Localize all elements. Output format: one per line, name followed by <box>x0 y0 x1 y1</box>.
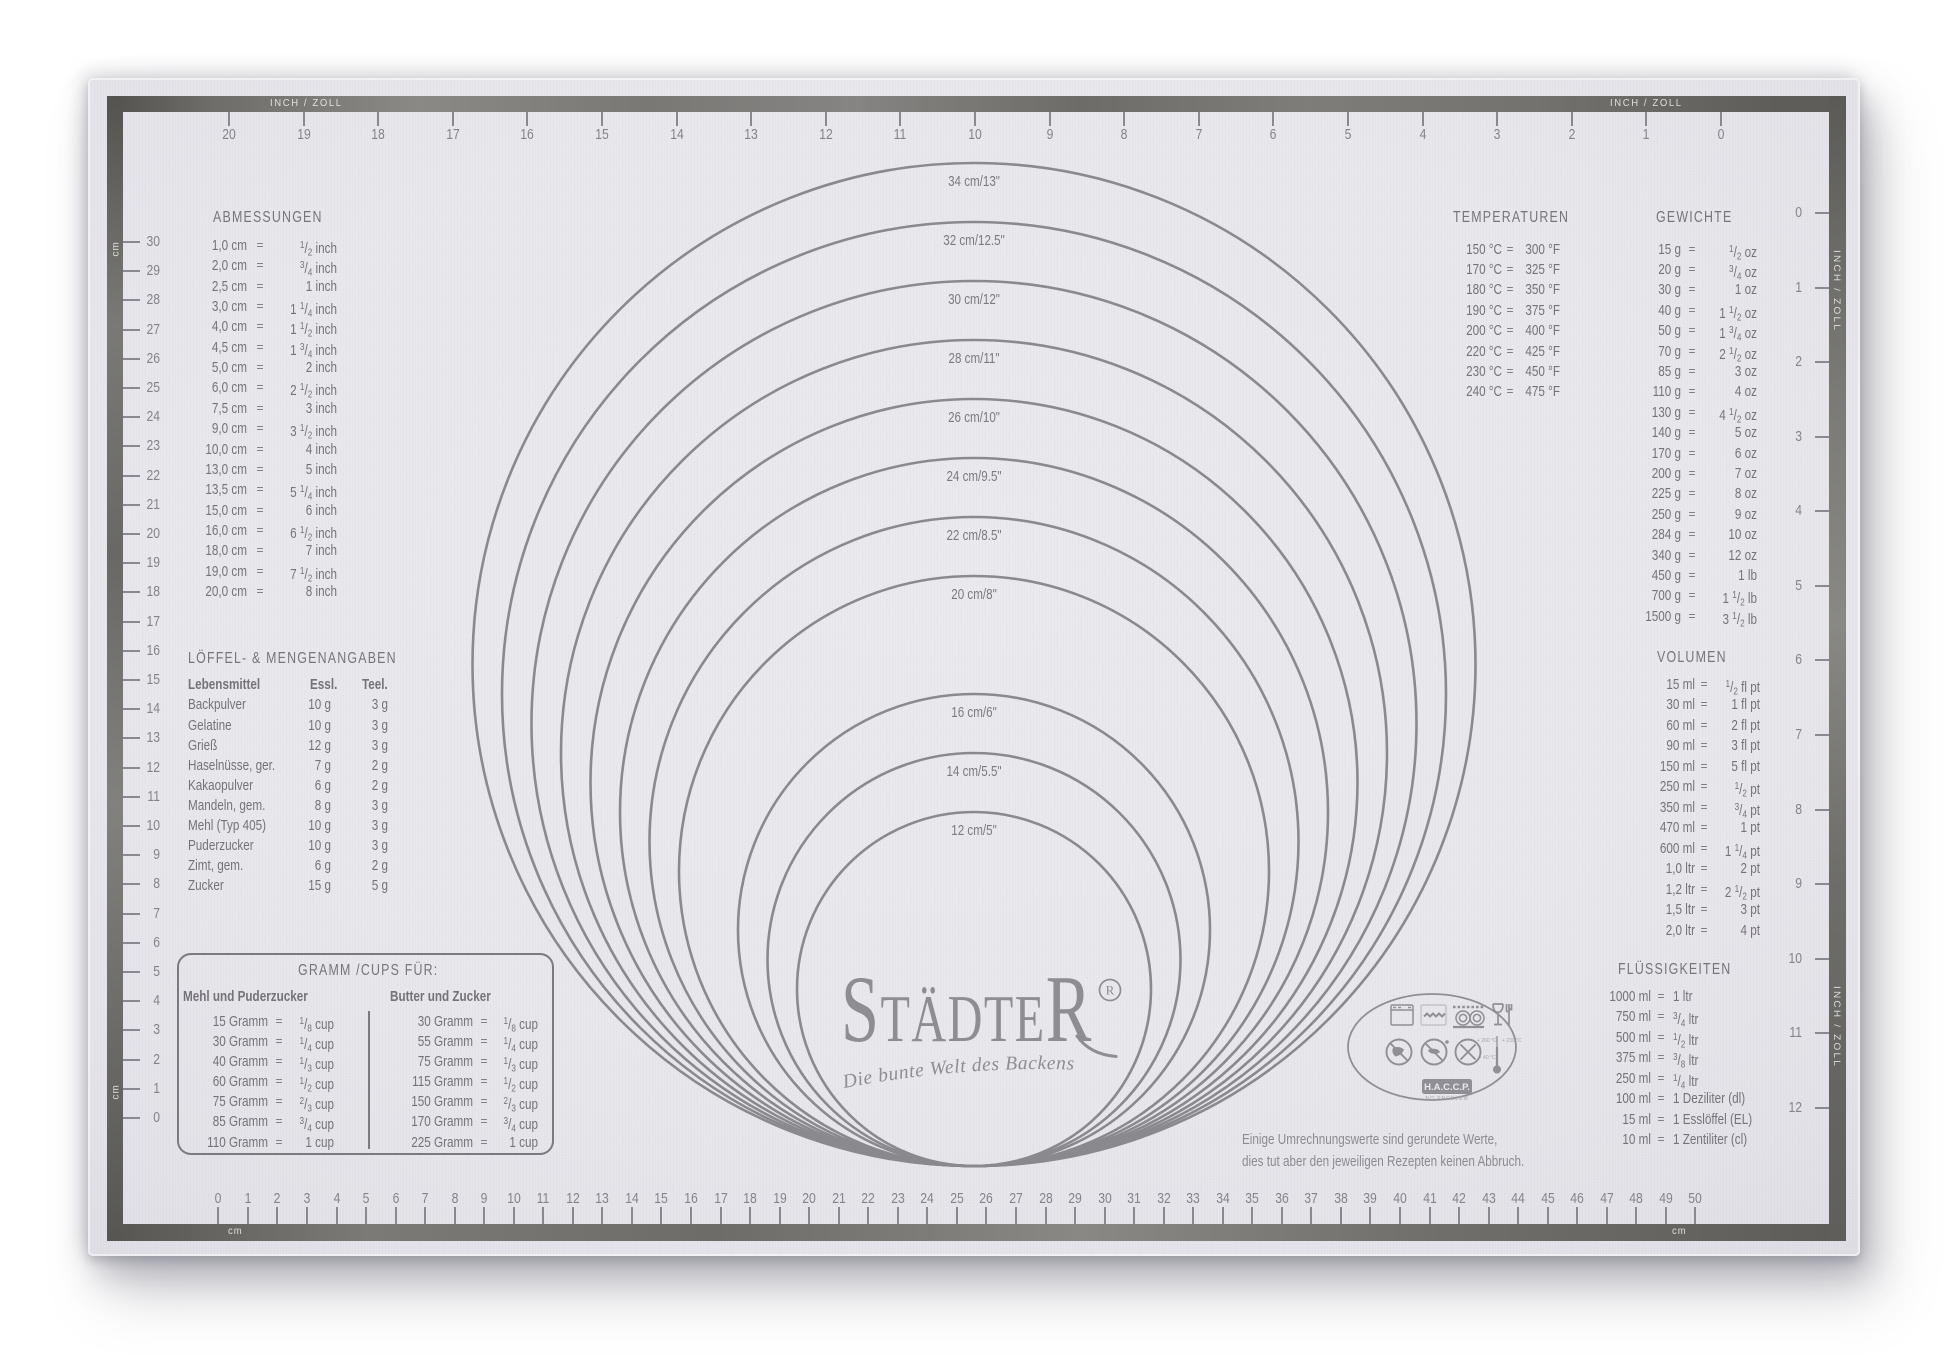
svg-text:+ 230 °C: + 230 °C <box>1502 1038 1522 1044</box>
svg-text:- 40 °C: - 40 °C <box>1480 1055 1496 1061</box>
svg-text:H.A.C.C.P.: H.A.C.C.P. <box>1424 1082 1470 1093</box>
svg-text:+ 260 °C: + 260 °C <box>1477 1038 1497 1044</box>
svg-text:STÄDTER: STÄDTER <box>841 968 1093 1062</box>
svg-text:R: R <box>1106 983 1115 998</box>
svg-text:NO PROBLEM: NO PROBLEM <box>1425 1096 1468 1102</box>
